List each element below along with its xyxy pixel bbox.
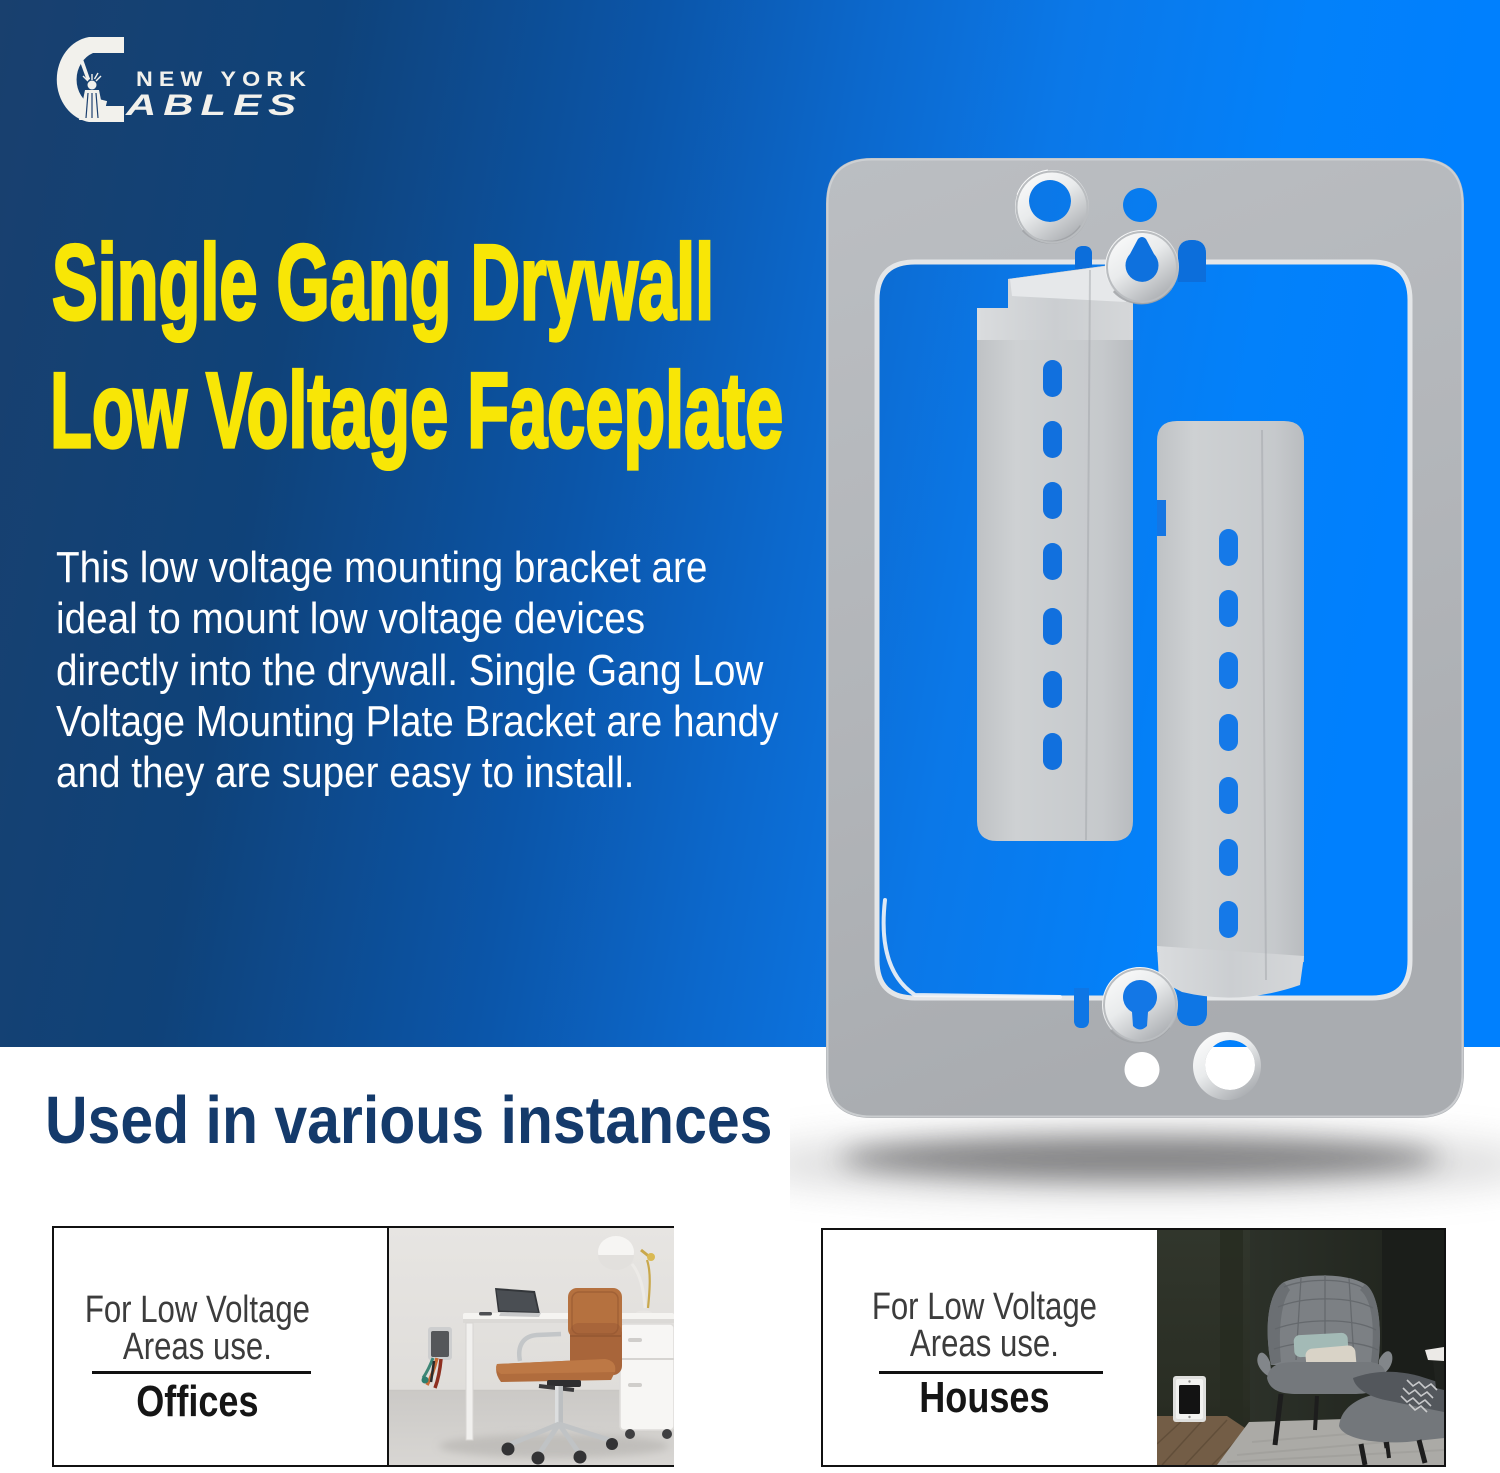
svg-text:ABLES: ABLES — [125, 89, 303, 122]
svg-text:NEW YORK: NEW YORK — [136, 68, 312, 91]
